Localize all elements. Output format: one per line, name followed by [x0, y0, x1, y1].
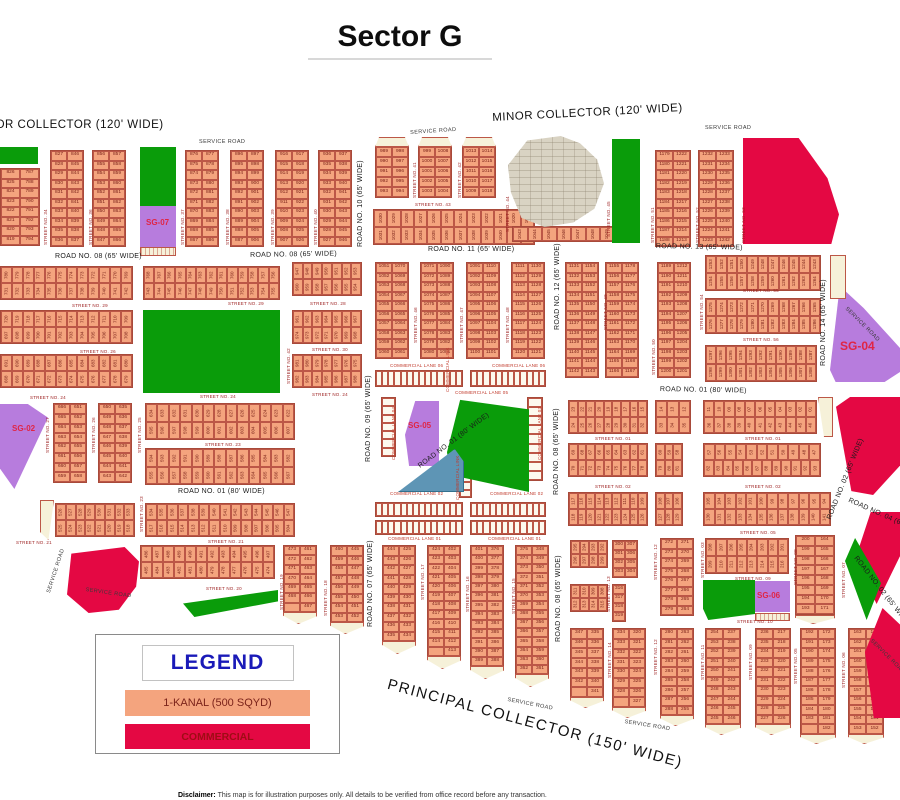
plot: 1120	[512, 349, 528, 359]
plot: 515	[167, 520, 178, 536]
plot: 769	[121, 267, 132, 283]
plot: 1221	[673, 161, 690, 171]
plot: 1053	[376, 282, 392, 292]
plot: 837	[67, 237, 83, 247]
plot: 856	[93, 151, 109, 161]
plot: 869	[186, 218, 202, 228]
plot: 170	[815, 595, 834, 605]
plot: 1100	[467, 349, 483, 359]
plot: 164	[815, 536, 834, 546]
plot: 1194	[658, 311, 674, 321]
plot: 251	[706, 658, 723, 668]
plot-block: 8568558548538528518508498488478578588598…	[92, 150, 126, 247]
plot: 434	[399, 632, 415, 642]
plot: 763	[196, 267, 206, 283]
plot: 1104	[483, 320, 499, 330]
plot-block: 108107106127128129	[655, 492, 683, 526]
plot: 746	[175, 283, 185, 299]
plot-wedge	[795, 615, 835, 624]
plot: 280	[661, 629, 677, 639]
street-label: STREET NO. 01	[595, 436, 631, 441]
street-label: STREET NO. 23	[205, 442, 241, 447]
plot: 1182	[656, 180, 673, 190]
plot: 731	[1, 283, 12, 299]
plot: 671	[34, 371, 45, 387]
plot: 1189	[658, 263, 674, 273]
plot: 178	[818, 686, 835, 696]
plot: 415	[428, 629, 444, 638]
plot: 107	[665, 493, 674, 509]
plot: 1198	[658, 349, 674, 359]
plot: 274	[661, 558, 677, 568]
plot: 874	[186, 170, 202, 180]
plot: 980	[303, 355, 313, 371]
plot: 1001	[419, 167, 435, 177]
plot: 49	[788, 444, 799, 460]
plot: 1240	[716, 218, 733, 228]
plot: 700	[34, 327, 45, 343]
plot: 465	[300, 584, 316, 593]
plot: 1141	[566, 358, 582, 368]
plot: 1155	[606, 263, 622, 273]
plot: 1281	[758, 316, 768, 333]
plot: 81	[673, 460, 682, 476]
street-label: STREET NO. 30	[312, 347, 348, 352]
plot: 601	[214, 422, 225, 440]
plot: 277	[661, 587, 677, 597]
plot: 708	[121, 327, 132, 343]
plot: 239	[723, 648, 740, 658]
plot: 747	[186, 283, 196, 299]
plot: 176	[818, 667, 835, 677]
road-label: ROAD NO. 08 (65' WIDE)	[55, 253, 142, 260]
plot: 780	[1, 267, 12, 283]
plot: 650	[99, 404, 115, 414]
plot: 928	[319, 227, 335, 237]
plot: 675	[77, 371, 88, 387]
plot: 292	[598, 541, 607, 554]
plot-block: 2722732742752762772782792712702692682672…	[660, 538, 694, 616]
commercial-lane-label: COMMERCIAL LANE 06	[492, 363, 545, 368]
street-label: STREET NO. 27	[45, 417, 50, 453]
plot: 1284	[789, 316, 799, 333]
plot: 218	[773, 639, 790, 649]
plot: 421	[428, 574, 444, 583]
plot: 540	[209, 504, 220, 520]
plot: 889	[231, 218, 247, 228]
plot: 590	[192, 449, 203, 467]
road-label: ROAD NO. 10 (65' WIDE)	[357, 160, 364, 247]
plot: 904	[247, 218, 263, 228]
plot: 1243	[810, 256, 820, 273]
plot: 411	[444, 629, 460, 638]
plot: 322	[629, 649, 645, 659]
plot: 690	[12, 355, 23, 371]
plot: 201	[778, 539, 788, 556]
plot: 1154	[582, 263, 598, 273]
street-label: STREET NO. 13	[606, 576, 611, 612]
plot-wedge	[418, 137, 452, 147]
plot: 762	[206, 267, 216, 283]
plot: 880	[202, 180, 218, 190]
park-area	[143, 310, 280, 393]
plot: 633	[157, 404, 168, 422]
plot: 840	[67, 208, 83, 218]
plot: 1218	[673, 189, 690, 199]
plot-block: 4444434424414404394384374364354254264274…	[382, 545, 416, 642]
plot: 1148	[582, 320, 598, 330]
commercial-lane-label: COMMERCIAL LANE 02	[390, 491, 443, 496]
plot: 582	[283, 449, 294, 467]
plot: 264	[677, 606, 693, 616]
plot: 995	[392, 177, 408, 187]
plot: 1299	[716, 364, 726, 382]
plot: 220	[773, 658, 790, 668]
plot: 765	[175, 267, 185, 283]
plot: 706	[99, 327, 110, 343]
plot: 36	[704, 417, 714, 433]
plot: 632	[169, 404, 180, 422]
plot: 583	[271, 449, 282, 467]
plot: 1143	[582, 368, 598, 378]
service-road-label: SERVICE ROAD	[624, 719, 671, 732]
plot: 507	[252, 520, 263, 536]
plot: 244	[723, 696, 740, 706]
plot-block: 6916906896886876866856846836826816806686…	[0, 354, 133, 388]
plot: 40	[745, 417, 755, 433]
plot: 102	[736, 493, 747, 509]
plot: 494	[230, 546, 241, 562]
plot: 135	[757, 509, 768, 525]
plot: 622	[283, 404, 294, 422]
plot: 73	[595, 460, 604, 476]
street-label: STREET NO. 06	[841, 652, 846, 688]
plot: 1184	[656, 199, 673, 209]
plot-block: 1921911901891881871861851841831721731741…	[800, 628, 836, 735]
plot: 132	[725, 509, 736, 525]
plot: 258	[677, 677, 693, 687]
plot: 344	[571, 658, 587, 668]
plot: 1251	[727, 256, 737, 273]
plot: 701	[45, 327, 56, 343]
street-label: STREET NO. 03	[700, 542, 705, 578]
title-underline	[308, 58, 492, 60]
plot: 744	[154, 283, 164, 299]
commercial-plot-block	[470, 370, 546, 387]
plot: 842	[67, 189, 83, 199]
plot: 1137	[566, 320, 582, 330]
plot: 463	[300, 565, 316, 574]
plot: 1200	[658, 368, 674, 378]
plot: 872	[186, 189, 202, 199]
plot: 159	[849, 667, 866, 677]
plot: 38	[724, 417, 734, 433]
plot: 191	[801, 639, 818, 649]
plot: 1153	[582, 273, 598, 283]
plot: 263	[677, 629, 693, 639]
plot: 1029	[387, 210, 400, 227]
plot: 659	[54, 472, 70, 482]
plot: 1116	[512, 311, 528, 321]
plot: 791	[20, 207, 39, 217]
plot: 593	[157, 449, 168, 467]
plot: 475	[252, 562, 263, 578]
plot: 870	[186, 208, 202, 218]
plot: 462	[300, 555, 316, 564]
plot: 537	[178, 504, 189, 520]
plot: 1058	[376, 330, 392, 340]
plot: 638	[115, 433, 131, 443]
plot: 526	[56, 504, 66, 520]
plot: 1208	[674, 301, 690, 311]
plot: 247	[706, 696, 723, 706]
plot: 130	[704, 509, 715, 525]
plot: 230	[756, 686, 773, 696]
plot: 942	[335, 199, 351, 209]
plot: 521	[95, 520, 105, 536]
plot-wedge	[427, 656, 461, 669]
street-label: STREET NO. 36	[88, 209, 93, 245]
plot-block: 5345355365375385395405415425435445455465…	[145, 503, 295, 537]
plot: 222	[773, 677, 790, 687]
plot: 932	[319, 189, 335, 199]
plot: 1255	[716, 273, 726, 290]
park-area	[140, 147, 176, 206]
plot: 400	[471, 555, 487, 564]
plot: 652	[70, 414, 86, 424]
plot: 946	[335, 237, 351, 247]
plot: 558	[180, 467, 191, 485]
commercial-plot-block	[470, 520, 546, 535]
plot: 409	[444, 610, 460, 619]
plot: 1009	[463, 187, 479, 197]
plot: 1233	[716, 151, 733, 161]
plot: 349	[532, 555, 548, 564]
plot: 950	[322, 263, 332, 279]
plot: 1110	[483, 263, 499, 273]
plot: 707	[110, 327, 121, 343]
plot: 1013	[463, 147, 479, 157]
plot: 1073	[421, 282, 437, 292]
plot: 401	[471, 546, 487, 555]
plot: 1231	[699, 161, 716, 171]
plot: 916	[276, 151, 292, 161]
plot: 417	[428, 610, 444, 619]
plot: 773	[77, 267, 88, 283]
plot: 858	[109, 161, 125, 171]
plot: 734	[34, 283, 45, 299]
plot: 899	[247, 170, 263, 180]
plot: 914	[276, 170, 292, 180]
plot-block: 8278288298308318328338348358368468458448…	[50, 150, 84, 247]
plot: 252	[706, 648, 723, 658]
plot: 03	[786, 401, 796, 417]
plot: 625	[249, 404, 260, 422]
street-label: STREET NO. 17	[420, 564, 425, 600]
plot: 513	[188, 520, 199, 536]
plot: 994	[392, 187, 408, 197]
plot-block: 696867666564636261707172737475767778	[568, 443, 648, 477]
plot-block: 989990991992993998997996995994	[375, 146, 409, 198]
plot: 1045	[542, 227, 557, 241]
plot: 745	[165, 283, 175, 299]
street-label: STREET NO. 34	[43, 209, 48, 245]
plot: 772	[88, 267, 99, 283]
plot: 1094	[467, 292, 483, 302]
plot: 339	[587, 668, 603, 678]
plot: 907	[276, 237, 292, 247]
plot: 80	[665, 460, 674, 476]
plot: 1179	[656, 151, 673, 161]
plot: 1159	[606, 301, 622, 311]
plot: 283	[661, 658, 677, 668]
plot: 88	[762, 460, 772, 476]
plot: 999	[419, 147, 435, 157]
street-label: STREET NO. 02	[745, 484, 781, 489]
plot: 1171	[622, 330, 638, 340]
plot: 1207	[674, 311, 690, 321]
plot: 1068	[392, 282, 408, 292]
plot: 559	[192, 467, 203, 485]
plot: 1276	[706, 316, 716, 333]
plot: 365	[516, 637, 532, 646]
plot: 51	[767, 444, 778, 460]
plot: 389	[471, 657, 487, 666]
plot: 1244	[799, 256, 809, 273]
plot-wedge	[612, 707, 646, 718]
street-label: STREET NO. 16	[465, 576, 470, 612]
plot-wedge	[375, 137, 409, 147]
plot: 1228	[699, 189, 716, 199]
road-label: ROAD NO. 01 (80' WIDE)	[660, 386, 747, 395]
plot: 329	[613, 678, 629, 688]
plot: 923	[292, 208, 308, 218]
plot: 47	[809, 444, 820, 460]
plot: 1083	[437, 330, 453, 340]
commercial-area	[67, 547, 139, 613]
legend-kanal-swatch: 1-KANAL (500 SQYD)	[125, 690, 310, 716]
plot: 1307	[796, 364, 806, 382]
plot: 137	[778, 509, 789, 525]
plot: 288	[661, 706, 677, 716]
plot: 607	[283, 422, 294, 440]
plot: 223	[773, 686, 790, 696]
plot: 562	[226, 467, 237, 485]
plot: 261	[677, 648, 693, 658]
plot: 105	[704, 493, 715, 509]
plot: 1032	[387, 227, 400, 244]
plot: 27	[595, 417, 604, 433]
street-label: STREET NO. 44	[505, 196, 510, 232]
plot: 674	[67, 371, 78, 387]
plot: 04	[775, 401, 785, 417]
plot: 245	[723, 705, 740, 715]
plot: 831	[51, 189, 67, 199]
plot: 862	[109, 199, 125, 209]
plot: 83	[714, 460, 724, 476]
plot: 78	[638, 460, 647, 476]
street-label: STREET NO. 07	[841, 562, 846, 598]
plot: 134	[746, 509, 757, 525]
plot: 12	[679, 401, 690, 417]
plot: 878	[202, 161, 218, 171]
plot: 921	[292, 189, 308, 199]
graveyard-area	[508, 136, 604, 227]
plot: 181	[818, 715, 835, 725]
street-label: STREET NO. 01	[745, 436, 781, 441]
plot: 960	[293, 279, 303, 295]
plot: 829	[51, 170, 67, 180]
plot: 560	[203, 467, 214, 485]
plot: 234	[756, 648, 773, 658]
plot: 835	[51, 227, 67, 237]
plot: 826	[1, 169, 20, 179]
plot: 96	[799, 493, 810, 509]
plot: 182	[818, 724, 835, 734]
plot: 250	[706, 667, 723, 677]
plot: 1301	[736, 364, 746, 382]
plot: 127	[656, 509, 665, 525]
plot: 91	[791, 460, 801, 476]
plot-block: 4604594584574564554544534454464474484494…	[330, 545, 364, 623]
plot: 737	[67, 283, 78, 299]
plot: 59	[665, 444, 674, 460]
plot: 07	[745, 401, 755, 417]
plot: 892	[231, 189, 247, 199]
plot: 528	[76, 504, 86, 520]
plot: 379	[487, 574, 503, 583]
plot: 75	[612, 460, 621, 476]
plot: 117	[569, 493, 578, 509]
plot: 77	[630, 460, 639, 476]
plot: 669	[12, 371, 23, 387]
plot: 195	[796, 585, 815, 595]
plot: 643	[99, 472, 115, 482]
plot: 636	[115, 414, 131, 424]
plot: 955	[342, 279, 352, 295]
plot: 642	[115, 472, 131, 482]
plot: 98	[778, 493, 789, 509]
plot: 319	[613, 612, 625, 621]
plot: 420	[428, 583, 444, 592]
plot: 678	[110, 371, 121, 387]
plot: 1227	[699, 199, 716, 209]
plot: 1253	[706, 256, 716, 273]
service-road-label: SERVICE ROAD	[705, 125, 751, 131]
plot: 1123	[528, 330, 544, 340]
plot: 713	[77, 311, 88, 327]
plot: 397	[471, 583, 487, 592]
plot-block: 1030102910281027102610251024102310221021…	[373, 209, 535, 245]
plot: 273	[661, 549, 677, 559]
plot: 1023	[467, 210, 480, 227]
plot: 140	[809, 509, 820, 525]
plot: 95	[809, 493, 820, 509]
page-title: Sector G	[305, 20, 495, 54]
plot: 775	[56, 267, 67, 283]
road-label: ROAD NO. 01 (80' WIDE)	[178, 488, 265, 495]
plot: 1291	[766, 346, 776, 364]
plot: 866	[109, 237, 125, 247]
plot-wedge	[40, 500, 54, 540]
plot: 33	[656, 417, 667, 433]
plot: 851	[93, 199, 109, 209]
plot: 468	[284, 593, 300, 602]
plot: 716	[45, 311, 56, 327]
plot: 41	[755, 417, 765, 433]
plot: 57	[704, 444, 715, 460]
plot: 444	[383, 546, 399, 556]
